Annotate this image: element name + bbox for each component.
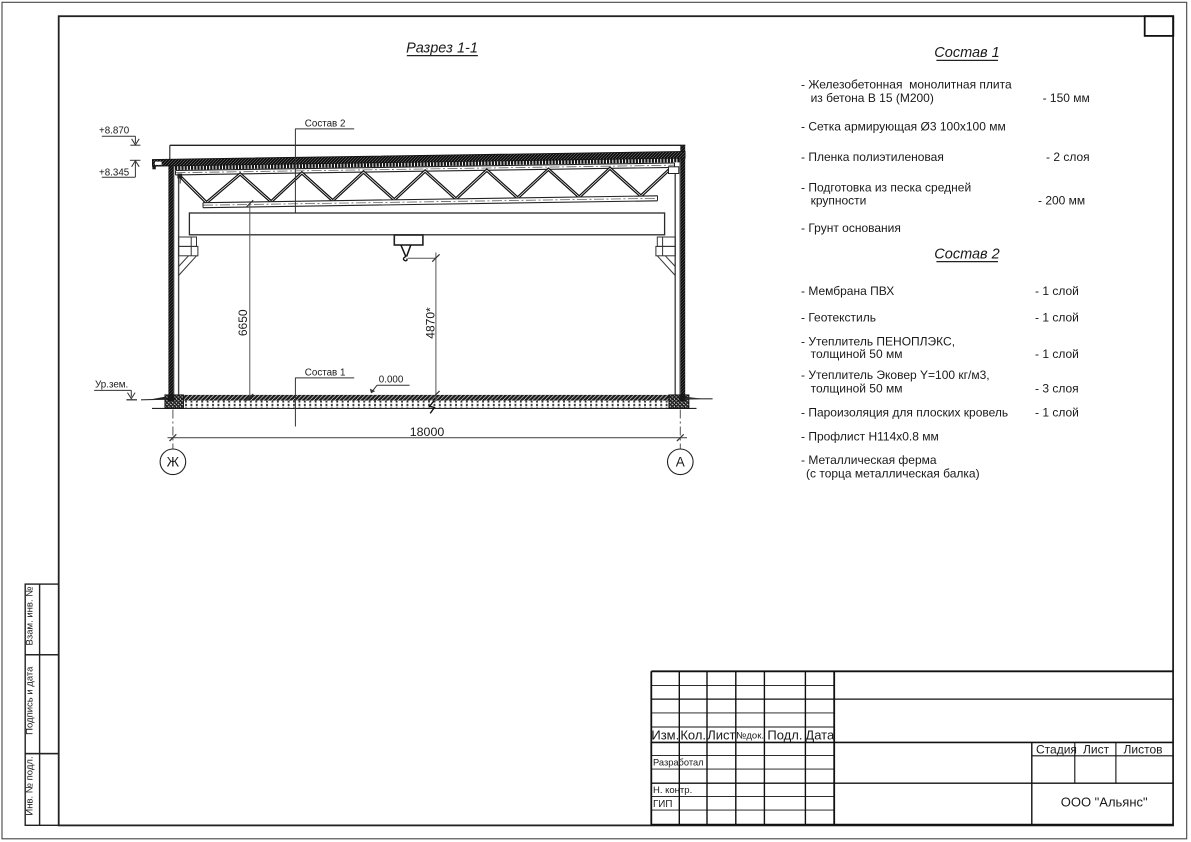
svg-text:толщиной 50 мм: толщиной 50 мм bbox=[811, 347, 903, 361]
svg-text:ООО "Альянс": ООО "Альянс" bbox=[1061, 795, 1148, 810]
svg-text:- Профлист Н114х0.8 мм: - Профлист Н114х0.8 мм bbox=[801, 430, 939, 444]
svg-text:Состав 2: Состав 2 bbox=[305, 119, 346, 130]
svg-text:- 1 слой: - 1 слой bbox=[1035, 284, 1079, 298]
svg-text:Дата: Дата bbox=[805, 728, 835, 743]
svg-text:из бетона В 15 (М200): из бетона В 15 (М200) bbox=[811, 91, 934, 105]
svg-text:- 2 слоя: - 2 слоя bbox=[1046, 150, 1090, 164]
svg-text:Взам. инв. №: Взам. инв. № bbox=[25, 587, 36, 646]
svg-text:Листов: Листов bbox=[1124, 743, 1163, 757]
svg-text:6650: 6650 bbox=[236, 309, 250, 336]
svg-text:- 3 слоя: - 3 слоя bbox=[1035, 382, 1079, 396]
svg-text:- 1 слой: - 1 слой bbox=[1035, 311, 1079, 325]
svg-text:- Пароизоляция для плоских кро: - Пароизоляция для плоских кровель bbox=[801, 406, 1008, 420]
svg-text:- 150 мм: - 150 мм bbox=[1043, 91, 1090, 105]
svg-text:Лист: Лист bbox=[1083, 743, 1110, 757]
svg-text:+8.870: +8.870 bbox=[99, 126, 130, 137]
svg-text:- 1 слой: - 1 слой bbox=[1035, 406, 1079, 420]
svg-text:Подл.: Подл. bbox=[767, 728, 802, 743]
svg-text:Состав 1: Состав 1 bbox=[934, 45, 999, 61]
svg-text:№док.: №док. bbox=[736, 731, 764, 742]
svg-text:ГИП: ГИП bbox=[653, 799, 672, 810]
svg-text:Кол.: Кол. bbox=[680, 728, 706, 743]
svg-text:0.000: 0.000 bbox=[379, 375, 404, 386]
svg-text:толщиной 50 мм: толщиной 50 мм bbox=[811, 382, 903, 396]
svg-text:- Грунт основания: - Грунт основания bbox=[801, 221, 901, 235]
svg-text:Инв. № подл.: Инв. № подл. bbox=[25, 756, 36, 815]
svg-text:18000: 18000 bbox=[410, 425, 445, 439]
svg-text:Разрез 1-1: Разрез 1-1 bbox=[406, 41, 478, 57]
svg-text:- Сетка армирующая Ø3 100х100: - Сетка армирующая Ø3 100х100 мм bbox=[801, 119, 1006, 133]
svg-text:Состав 2: Состав 2 bbox=[934, 246, 999, 262]
svg-text:Ж: Ж bbox=[167, 455, 180, 470]
svg-text:Н. контр.: Н. контр. bbox=[653, 785, 692, 796]
svg-text:Состав 1: Состав 1 bbox=[305, 368, 346, 379]
svg-text:4870*: 4870* bbox=[423, 307, 437, 339]
svg-text:(с торца металлическая балка): (с торца металлическая балка) bbox=[806, 467, 980, 481]
svg-text:- Подготовка из песка средней: - Подготовка из песка средней bbox=[801, 180, 971, 194]
svg-text:Лист: Лист bbox=[707, 728, 735, 743]
svg-text:- Геотекстиль: - Геотекстиль bbox=[801, 311, 876, 325]
svg-text:- Мембрана ПВХ: - Мембрана ПВХ bbox=[801, 284, 894, 298]
svg-text:- Железобетонная монолитная п: - Железобетонная монолитная плита bbox=[801, 78, 1012, 92]
svg-text:- Пленка полиэтиленовая: - Пленка полиэтиленовая bbox=[801, 150, 944, 164]
svg-text:А: А bbox=[676, 455, 685, 470]
svg-text:- Металлическая ферма: - Металлическая ферма bbox=[801, 453, 937, 467]
svg-text:Разработал: Разработал bbox=[653, 758, 704, 768]
svg-text:- 1 слой: - 1 слой bbox=[1035, 347, 1079, 361]
svg-text:Подпись и дата: Подпись и дата bbox=[25, 666, 36, 735]
svg-text:Ур.зем.: Ур.зем. bbox=[95, 379, 128, 390]
svg-text:- 200 мм: - 200 мм bbox=[1038, 194, 1085, 208]
svg-text:крупности: крупности bbox=[811, 194, 867, 208]
svg-text:- Утеплитель Эковер Y=100 кг/м: - Утеплитель Эковер Y=100 кг/м3, bbox=[801, 368, 990, 382]
svg-text:Стадия: Стадия bbox=[1036, 743, 1077, 757]
svg-text:Изм.: Изм. bbox=[651, 728, 679, 743]
svg-text:+8.345: +8.345 bbox=[99, 167, 130, 178]
